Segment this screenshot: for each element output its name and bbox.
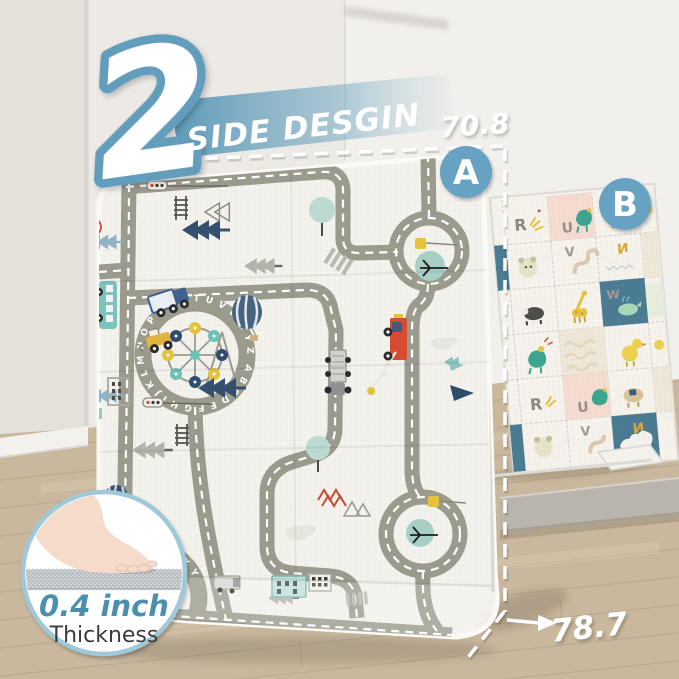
mat-b: R U V N: [490, 184, 679, 474]
side-a-badge: A: [440, 146, 492, 198]
side-a-label: A: [453, 153, 480, 193]
mat-b-texture: [490, 184, 679, 474]
product-image: R U V N: [0, 0, 679, 679]
side-b-label: B: [612, 185, 638, 225]
wall-left: [0, 0, 88, 470]
thickness-label: Thickness: [49, 623, 159, 648]
scene-svg: R U V N: [0, 0, 679, 679]
thickness-value: 0.4 inch: [39, 589, 169, 623]
side-b-badge: B: [599, 178, 651, 230]
